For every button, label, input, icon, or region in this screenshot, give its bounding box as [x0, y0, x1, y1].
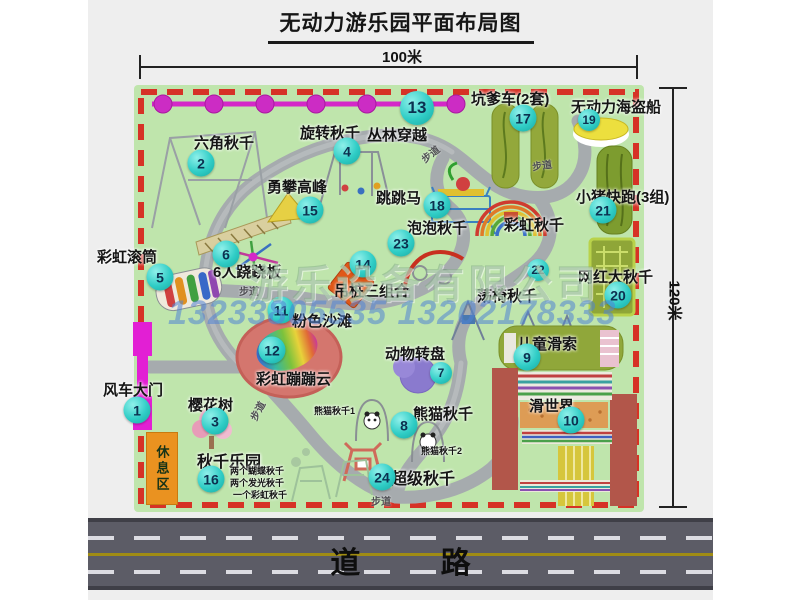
attraction-label-11: 粉色沙滩	[292, 310, 352, 331]
path-label-2: 步道	[239, 283, 259, 298]
attraction-badge-2: 2	[188, 150, 215, 177]
attraction-label-12: 彩虹蹦蹦云	[256, 368, 331, 389]
map-extra-label-1: 熊猫秋千1	[314, 404, 355, 417]
attraction-label-8: 熊猫秋千	[413, 403, 473, 424]
attraction-badge-23: 23	[388, 230, 415, 257]
rest-area: 休息区	[146, 432, 178, 505]
attraction-badge-3: 3	[202, 408, 229, 435]
attraction-badge-14: 14	[350, 251, 377, 278]
attraction-label-22: 荡椅秋千	[477, 285, 537, 306]
attraction-badge-7: 7	[430, 362, 452, 384]
attraction-badge-4: 4	[334, 138, 361, 165]
path-label-1: 步道	[531, 156, 553, 174]
attraction-badge-9: 9	[514, 344, 541, 371]
attraction-badge-5: 5	[147, 264, 174, 291]
height-dim-tick-top	[659, 87, 687, 89]
map-extra-label-2: 熊猫秋千2	[421, 444, 462, 457]
map-extra-label-0: 彩虹秋千	[504, 214, 564, 235]
attraction-label-13: 丛林穿越	[367, 124, 427, 145]
attraction-label-17: 坑爹车(2套)	[471, 88, 549, 109]
attraction-badge-6: 6	[213, 241, 240, 268]
attraction-badge-20: 20	[605, 282, 632, 309]
road: 道 路	[88, 518, 713, 590]
path-label-4: 步道	[371, 493, 391, 508]
road-label: 道 路	[88, 538, 713, 582]
attraction-badge-17: 17	[510, 105, 537, 132]
attraction-label-5: 彩虹滚筒	[97, 246, 157, 267]
width-dim-tick-right	[636, 55, 638, 79]
height-dim-tick-bottom	[659, 506, 687, 508]
panda-swing-1-icon	[356, 400, 388, 441]
height-dim-label: 120米	[665, 280, 686, 320]
attraction-badge-19: 19	[578, 109, 600, 131]
attraction-badge-22: 22	[527, 259, 549, 281]
attraction-badge-1: 1	[124, 397, 151, 424]
slide-world-icon	[492, 368, 637, 506]
attraction-label-23: 泡泡秋千	[407, 217, 467, 238]
attraction-badge-15: 15	[297, 197, 324, 224]
attraction-badge-13: 13	[400, 91, 434, 125]
attraction-badge-18: 18	[424, 192, 451, 219]
width-dim-tick-left	[139, 55, 141, 79]
attraction-badge-16: 16	[198, 466, 225, 493]
attraction-badge-21: 21	[590, 197, 617, 224]
walking-paths	[150, 121, 585, 497]
rest-area-label: 休息区	[153, 445, 172, 493]
attraction-label-14: 吊桩三组合	[334, 280, 409, 301]
title-text: 无动力游乐园平面布局图	[268, 7, 534, 44]
attraction-badge-11: 11	[268, 297, 295, 324]
attraction-label-15: 勇攀高峰	[267, 176, 327, 197]
attraction-badge-10: 10	[558, 407, 585, 434]
attraction-label-24: 超级秋千	[391, 465, 455, 489]
map-extra-label-5: 一个彩虹秋千	[233, 488, 287, 501]
page-title: 无动力游乐园平面布局图	[88, 7, 713, 44]
width-dim-label: 100米	[382, 46, 422, 67]
attraction-label-7: 动物转盘	[385, 343, 445, 364]
attraction-label-18: 跳跳马	[376, 187, 421, 208]
attraction-badge-24: 24	[369, 464, 396, 491]
attraction-badge-8: 8	[391, 412, 418, 439]
attraction-badge-12: 12	[259, 337, 286, 364]
